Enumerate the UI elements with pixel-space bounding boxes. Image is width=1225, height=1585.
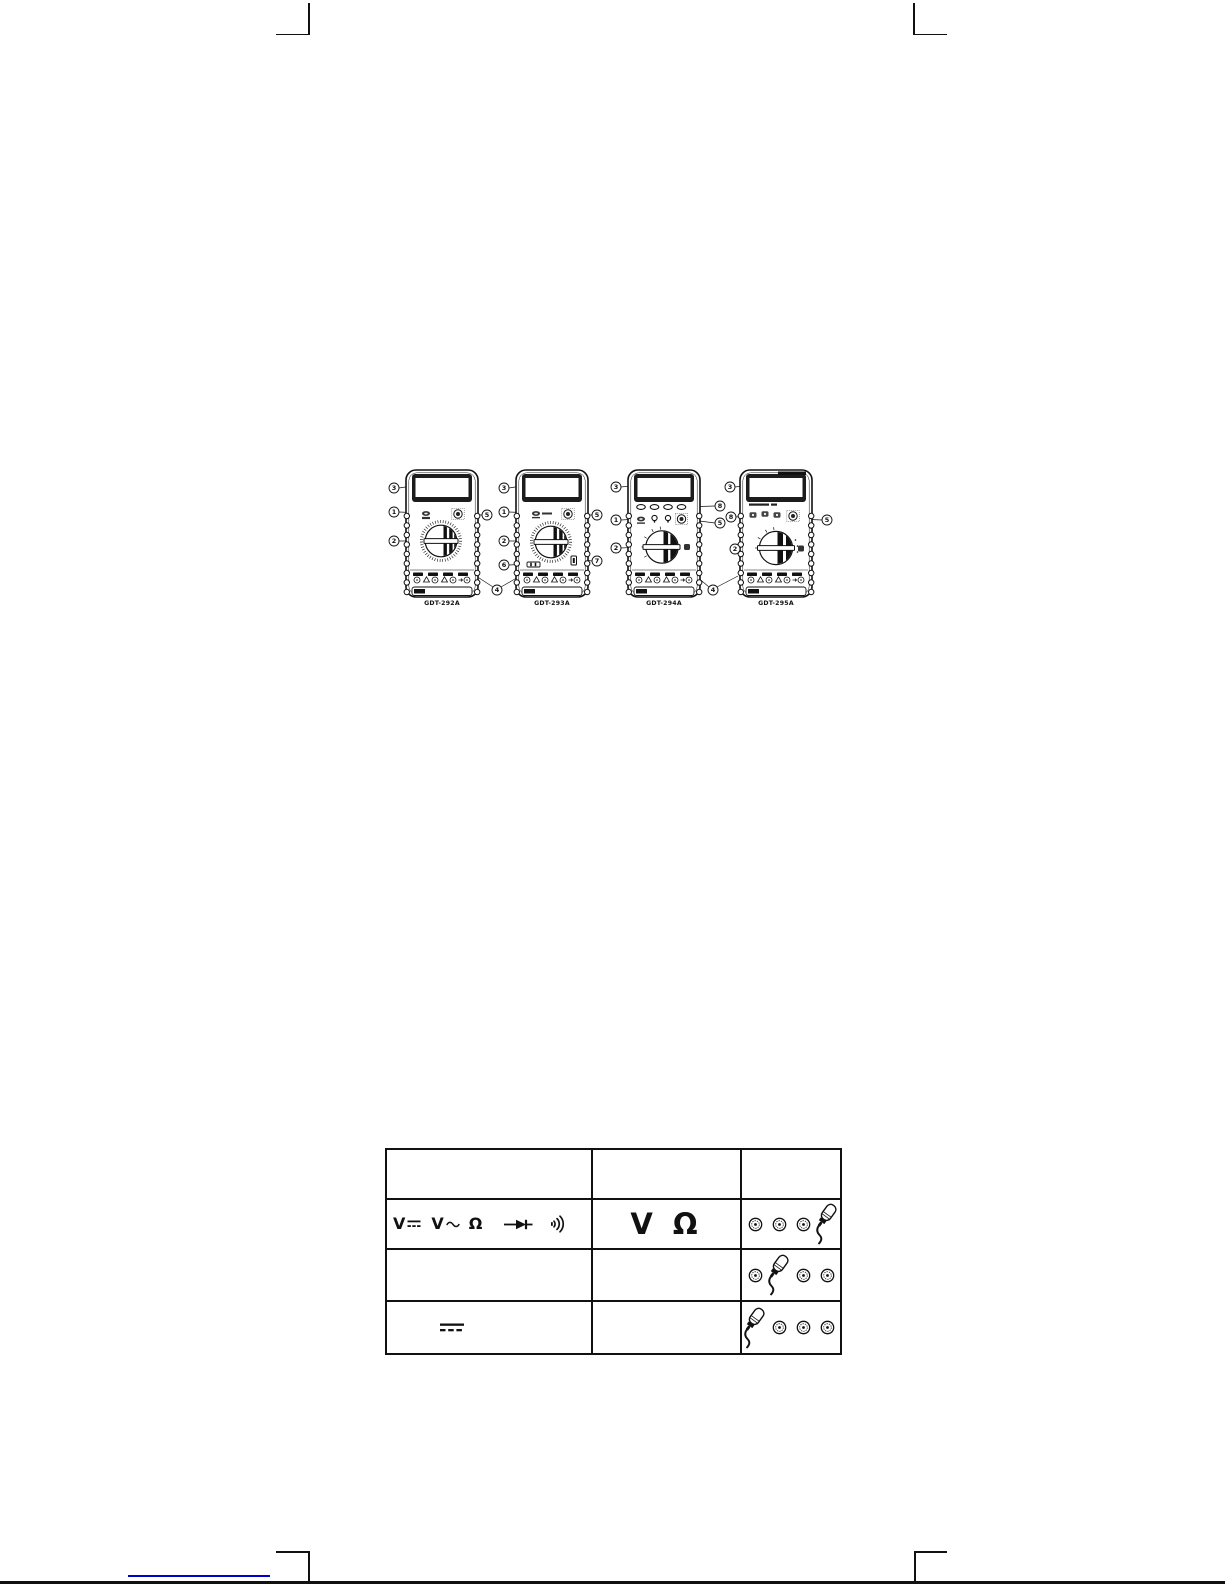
callout-badge: 2 (730, 544, 740, 554)
callout-badge: 3 (611, 482, 621, 492)
side-button (684, 544, 690, 550)
model-label: GDT-293A (534, 600, 570, 607)
side-button (798, 546, 804, 552)
callout-badge: 2 (499, 536, 509, 546)
function-symbols-cell (387, 1322, 591, 1333)
power-button (532, 511, 540, 518)
svg-text:7: 7 (595, 557, 600, 565)
svg-text:4: 4 (495, 586, 500, 594)
probe-plug-icon (769, 1253, 790, 1297)
callout-badge: 7 (592, 556, 602, 566)
table-row (386, 1249, 841, 1301)
diode-icon (503, 1218, 534, 1231)
jack-socket-icon (817, 1306, 838, 1350)
crop-mark-bottom-left (276, 1551, 310, 1553)
callout-badge: 8 (715, 501, 725, 511)
svg-text:5: 5 (718, 519, 723, 527)
model-label: GDT-295A (758, 600, 794, 607)
meter-gdt-293a (514, 470, 590, 597)
continuity-icon (550, 1214, 570, 1234)
jack-socket-icon (817, 1253, 838, 1297)
dc-large-symbol (439, 1322, 465, 1333)
callout-badge: 1 (611, 515, 621, 525)
crop-mark-top-right (913, 3, 915, 35)
ac-icon (446, 1220, 460, 1229)
table-row (386, 1301, 841, 1354)
svg-text:3: 3 (728, 483, 733, 491)
svg-text:3: 3 (392, 484, 397, 492)
svg-text:5: 5 (485, 511, 490, 519)
callout-badge: 3 (725, 482, 735, 492)
footer-link-underline[interactable] (128, 1575, 270, 1577)
table-header-cell (386, 1149, 592, 1199)
power-button (422, 511, 430, 518)
callout-badge: 5 (822, 515, 832, 525)
continuity-symbol (550, 1214, 570, 1234)
probe-plug-icon (817, 1202, 838, 1246)
crop-mark-bottom-right (914, 1551, 947, 1553)
callout-badge: 5 (482, 510, 492, 520)
jack-diagram-cell (742, 1306, 840, 1350)
jack-socket-icon (793, 1253, 814, 1297)
jack-selection-table: VVΩ V Ω (385, 1148, 842, 1355)
callout-badge: 2 (611, 543, 621, 553)
svg-text:2: 2 (733, 545, 738, 553)
dc-symbol: V (393, 1216, 422, 1232)
svg-text:1: 1 (502, 508, 507, 516)
crop-mark-bottom-right (914, 1551, 916, 1584)
svg-text:1: 1 (614, 516, 619, 524)
accessory-socket (571, 556, 577, 565)
svg-text:5: 5 (825, 516, 830, 524)
callout-badge: 5 (592, 510, 602, 520)
svg-text:6: 6 (502, 561, 507, 569)
callout-badge: 4 (492, 585, 502, 595)
callout-badge: 1 (499, 507, 509, 517)
callout-badge: 8 (726, 512, 736, 522)
jack-socket-icon (745, 1202, 766, 1246)
meter-gdt-292a (404, 470, 480, 597)
jack-diagram-cell (742, 1253, 840, 1297)
svg-text:2: 2 (392, 537, 397, 545)
crop-mark-top-right (913, 34, 947, 36)
crop-mark-top-left (276, 34, 310, 36)
callout-badge: 3 (499, 483, 509, 493)
page-bottom-rule (0, 1581, 1225, 1584)
manual-page: 3 1 5 2 3 1 5 2 6 7 4 3 8 1 5 2 4 3 8 5 … (0, 0, 1225, 1585)
table-header-cell (741, 1149, 841, 1199)
slide-switch (527, 562, 540, 567)
meter-gdt-294a (626, 470, 702, 597)
display-symbols-cell: V Ω (592, 1199, 741, 1249)
ac-symbol: V (431, 1216, 459, 1232)
display-symbols-cell (592, 1301, 741, 1354)
text-symbol: Ω (469, 1216, 483, 1232)
jack-diagram-cell (742, 1202, 840, 1246)
svg-text:3: 3 (502, 484, 507, 492)
svg-text:8: 8 (718, 502, 723, 510)
svg-text:3: 3 (614, 483, 619, 491)
model-label: GDT-292A (424, 600, 460, 607)
jack-socket-icon (769, 1202, 790, 1246)
table-row: VVΩ V Ω (386, 1199, 841, 1249)
callout-badge: 4 (708, 585, 718, 595)
svg-text:2: 2 (614, 544, 619, 552)
function-symbols-cell: VVΩ (387, 1214, 591, 1234)
meter-gdt-295a (738, 470, 814, 597)
table-header-cell (592, 1149, 741, 1199)
jack-socket-icon (793, 1306, 814, 1350)
svg-text:8: 8 (729, 513, 734, 521)
probe-plug-icon (745, 1306, 766, 1350)
model-label: GDT-294A (646, 600, 682, 607)
diode-symbol (503, 1218, 534, 1231)
jack-socket-icon (769, 1306, 790, 1350)
dc-large-icon (439, 1322, 465, 1333)
multimeter-figure: 3 1 5 2 3 1 5 2 6 7 4 3 8 1 5 2 4 3 8 5 … (380, 453, 840, 617)
svg-text:5: 5 (595, 511, 600, 519)
dc-icon (407, 1219, 422, 1229)
display-symbols-cell (592, 1249, 741, 1301)
crop-mark-top-left (308, 3, 310, 35)
callout-badge: 6 (499, 560, 509, 570)
callout-badge: 3 (389, 483, 399, 493)
svg-text:2: 2 (502, 537, 507, 545)
crop-mark-bottom-left (308, 1551, 310, 1584)
callout-badge: 1 (389, 507, 399, 517)
svg-text:4: 4 (711, 586, 716, 594)
callout-badge: 5 (715, 518, 725, 528)
svg-text:1: 1 (392, 508, 397, 516)
callout-badge: 2 (389, 536, 399, 546)
